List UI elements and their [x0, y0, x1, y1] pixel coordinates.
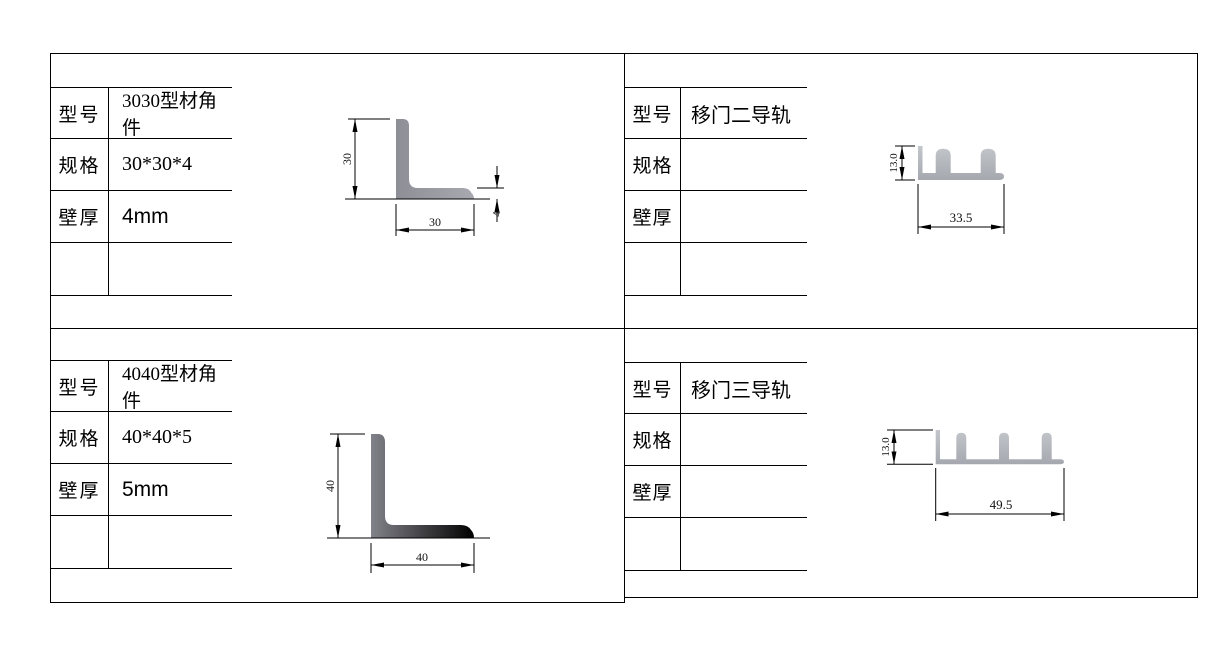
empty-label-cell: [51, 243, 109, 295]
spec-value: [681, 414, 807, 465]
spec-table-3030: 型号 3030型材角件 规格 30*30*4 壁厚 4mm: [50, 53, 233, 329]
dimension-height: 13.0: [880, 430, 933, 464]
l-profile-shape: [396, 119, 474, 199]
wall-label: 壁厚: [625, 191, 681, 242]
table-row-blank: [51, 329, 232, 361]
dim-width-text: 49.5: [990, 497, 1013, 512]
dim-height-text: 40: [323, 480, 337, 492]
table-row-model: 型号 移门二导轨: [625, 88, 807, 139]
dim-height-text: 13.0: [888, 153, 900, 173]
wall-label: 壁厚: [51, 191, 109, 242]
empty-value-cell: [109, 243, 232, 295]
table-row-spec: 规格: [625, 414, 807, 466]
dimension-height: 30: [340, 119, 490, 199]
wall-value: 4mm: [109, 191, 232, 242]
l-profile-shape: [371, 434, 474, 538]
drawing-panel-track3: 13.0 49.5: [807, 329, 1198, 598]
spec-label: 规格: [625, 414, 681, 465]
table-row-model: 型号 移门三导轨: [625, 363, 807, 414]
table-row-wall: 壁厚 5mm: [51, 464, 232, 516]
profile-drawing-track3: 13.0 49.5: [807, 329, 1197, 597]
table-row-blank: [51, 569, 232, 601]
empty-label-cell: [625, 518, 681, 570]
dimension-width: 30: [396, 204, 474, 236]
table-row-empty: [625, 243, 807, 296]
table-row-blank: [625, 296, 807, 328]
table-row-blank: [625, 571, 807, 596]
dim-height-text: 30: [340, 153, 354, 165]
empty-value-cell: [681, 518, 807, 570]
drawing-panel-3030: 30 30 4: [232, 53, 625, 329]
spec-label: 规格: [51, 412, 109, 463]
wall-label: 壁厚: [625, 466, 681, 517]
profile-drawing-3030: 30 30 4: [232, 54, 624, 328]
empty-label-cell: [625, 243, 681, 295]
table-row-wall: 壁厚 4mm: [51, 191, 232, 243]
drawing-panel-4040: 40 40: [232, 329, 625, 603]
track-profile-shape: [918, 146, 1004, 180]
table-row-blank: [625, 54, 807, 88]
dim-height-text: 13.0: [880, 437, 892, 457]
wall-label: 壁厚: [51, 464, 109, 515]
spec-label: 规格: [51, 139, 109, 190]
dimension-width: 33.5: [918, 184, 1004, 234]
wall-value: [681, 191, 807, 242]
profile-spec-sheet: 型号 3030型材角件 规格 30*30*4 壁厚 4mm 30: [0, 0, 1226, 664]
table-row-spec: 规格 40*40*5: [51, 412, 232, 464]
wall-value: [681, 466, 807, 517]
table-row-spec: 规格 30*30*4: [51, 139, 232, 191]
track-profile-shape: [936, 430, 1064, 464]
model-label: 型号: [625, 363, 681, 413]
drawing-panel-track2: 13.0 33.5: [807, 53, 1198, 329]
profile-drawing-track2: 13.0 33.5: [807, 54, 1197, 328]
dimension-width: 49.5: [936, 468, 1064, 521]
dim-width-text: 40: [416, 550, 428, 564]
spec-table-track3: 型号 移门三导轨 规格 壁厚: [624, 329, 808, 598]
spec-value: [681, 139, 807, 190]
spec-value: 30*30*4: [109, 139, 232, 190]
model-value: 移门二导轨: [681, 88, 807, 138]
empty-value-cell: [109, 516, 232, 568]
dim-width-text: 30: [429, 215, 441, 229]
table-row-model: 型号 3030型材角件: [51, 88, 232, 139]
spec-value: 40*40*5: [109, 412, 232, 463]
model-label: 型号: [51, 88, 109, 138]
dim-width-text: 33.5: [950, 210, 973, 225]
spec-table-track2: 型号 移门二导轨 规格 壁厚: [624, 53, 808, 329]
dim-thickness-text: 4: [491, 211, 503, 217]
empty-label-cell: [51, 516, 109, 568]
table-row-model: 型号 4040型材角件: [51, 361, 232, 412]
dimension-width: 40: [371, 543, 474, 573]
wall-value: 5mm: [109, 464, 232, 515]
profile-drawing-4040: 40 40: [232, 329, 624, 602]
table-row-empty: [51, 516, 232, 569]
model-value: 3030型材角件: [109, 88, 232, 138]
model-value: 4040型材角件: [109, 361, 232, 411]
dimension-height: 40: [323, 434, 490, 538]
dimension-height: 13.0: [888, 146, 915, 180]
model-label: 型号: [51, 361, 109, 411]
table-row-wall: 壁厚: [625, 466, 807, 518]
table-row-wall: 壁厚: [625, 191, 807, 243]
spec-table-4040: 型号 4040型材角件 规格 40*40*5 壁厚 5mm: [50, 329, 233, 603]
spec-label: 规格: [625, 139, 681, 190]
model-value: 移门三导轨: [681, 363, 807, 413]
table-row-blank: [51, 296, 232, 328]
table-row-empty: [625, 518, 807, 571]
table-row-spec: 规格: [625, 139, 807, 191]
model-label: 型号: [625, 88, 681, 138]
empty-value-cell: [681, 243, 807, 295]
table-row-empty: [51, 243, 232, 296]
dimension-thickness: 4: [477, 166, 504, 222]
table-row-blank: [51, 54, 232, 88]
table-row-blank: [625, 329, 807, 363]
